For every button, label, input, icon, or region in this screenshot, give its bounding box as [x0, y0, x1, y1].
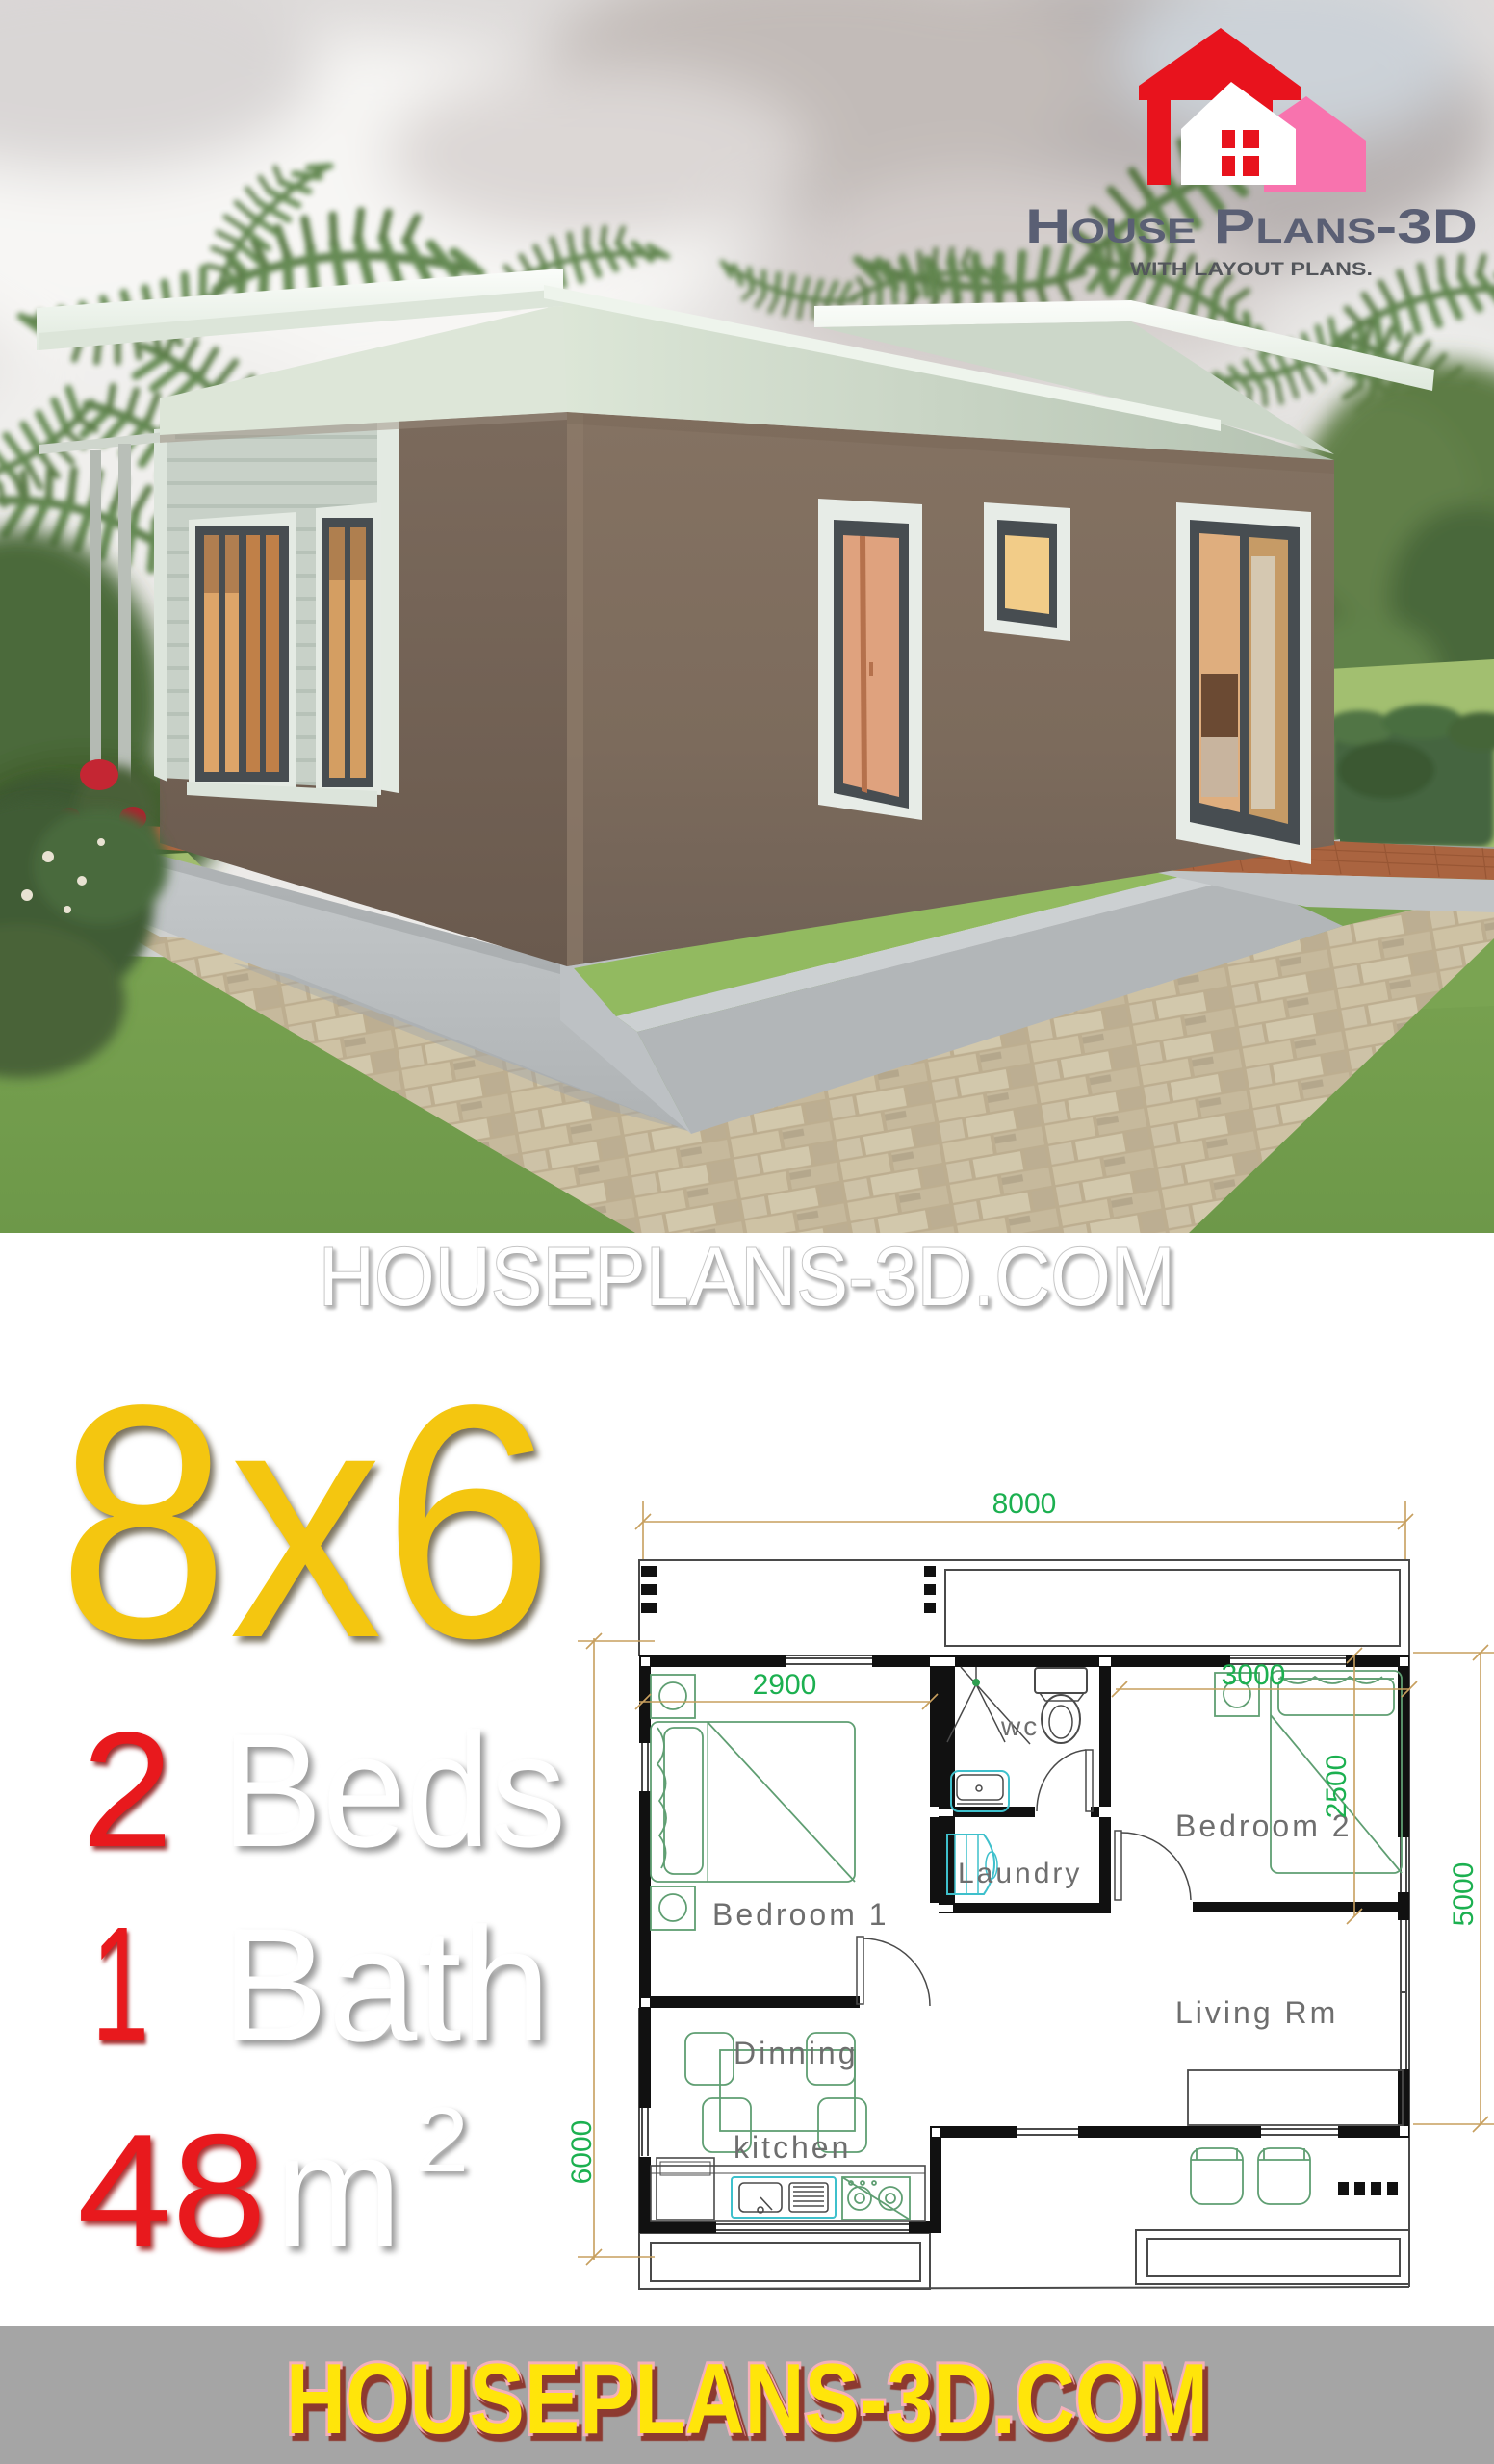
svg-text:Laundry: Laundry	[958, 1858, 1082, 1889]
svg-text:Beds: Beds	[221, 1700, 566, 1881]
svg-text:HOUSEPLANS-3D.COM: HOUSEPLANS-3D.COM	[319, 1231, 1175, 1323]
svg-text:Bedroom 1: Bedroom 1	[712, 1897, 889, 1932]
svg-text:wc: wc	[1000, 1711, 1040, 1741]
svg-text:2: 2	[415, 2089, 469, 2192]
svg-text:m: m	[275, 2100, 401, 2281]
svg-text:2500: 2500	[1321, 1755, 1352, 1819]
svg-text:8000: 8000	[992, 1488, 1057, 1520]
svg-text:48: 48	[77, 2100, 267, 2281]
svg-text:Bath: Bath	[221, 1894, 551, 2075]
svg-text:2: 2	[82, 1699, 173, 1882]
svg-text:House Plans-3D: House Plans-3D	[1025, 199, 1478, 253]
svg-text:WITH LAYOUT PLANS.: WITH LAYOUT PLANS.	[1130, 260, 1373, 280]
svg-text:kitchen: kitchen	[734, 2130, 851, 2165]
svg-text:Living Rm: Living Rm	[1175, 1995, 1338, 2030]
svg-text:1: 1	[91, 1893, 149, 2076]
svg-text:2900: 2900	[753, 1669, 817, 1701]
svg-text:6000: 6000	[566, 2120, 598, 2185]
svg-text:8x6: 8x6	[58, 1337, 554, 1707]
svg-text:5000: 5000	[1448, 1862, 1480, 1927]
svg-text:Dinning: Dinning	[734, 2036, 859, 2070]
svg-text:HOUSEPLANS-3D.COM: HOUSEPLANS-3D.COM	[286, 2344, 1208, 2455]
svg-text:3000: 3000	[1222, 1659, 1286, 1691]
